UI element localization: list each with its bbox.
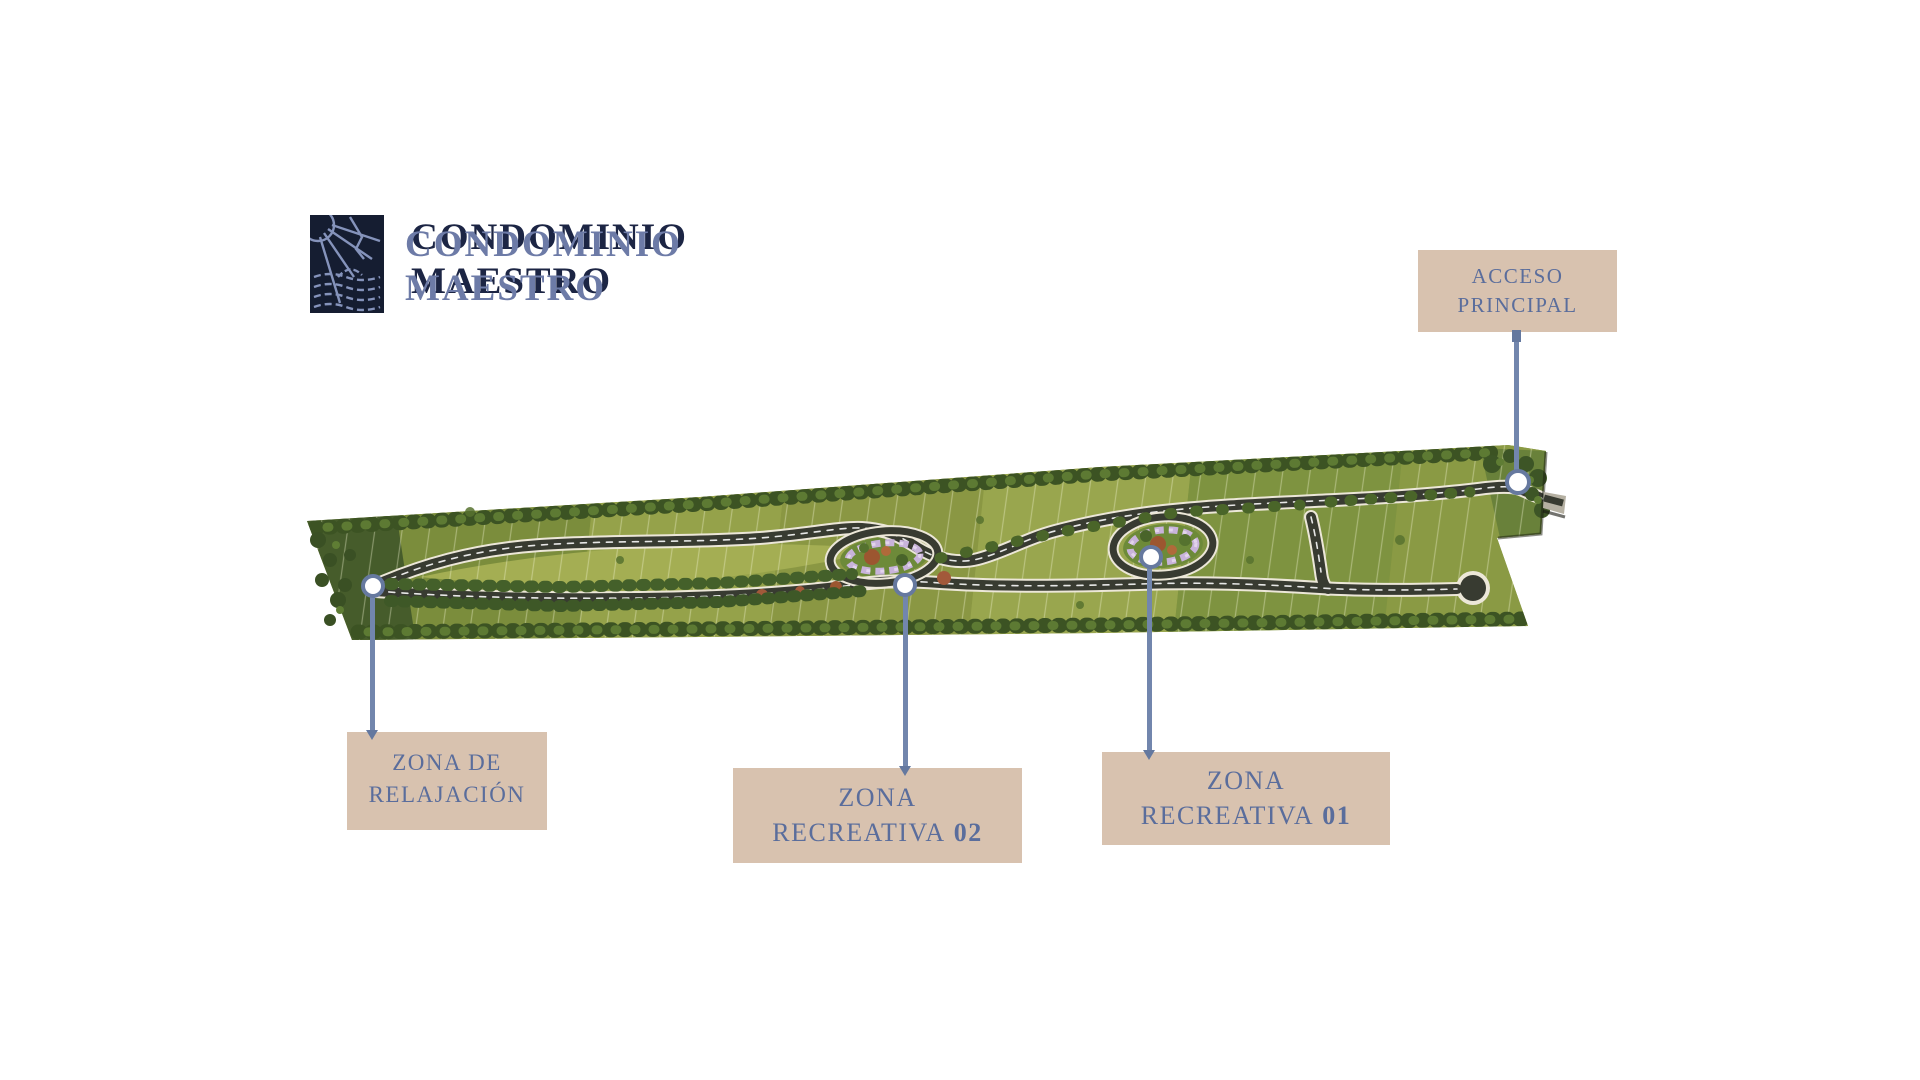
connector-tip-relajacion [366, 730, 378, 740]
connector-zona-recreativa-01 [1147, 568, 1152, 752]
connector-zona-recreativa-02 [903, 596, 908, 770]
callout-zona-recreativa-02: ZONA RECREATIVA 02 [733, 768, 1022, 863]
connector-zona-relajacion [370, 597, 375, 734]
marker-acceso-principal [1505, 469, 1531, 495]
page: { "brand": { "logo_icon": "sailboat-sun-… [0, 0, 1920, 1080]
connector-tip-recreativa-02 [899, 766, 911, 776]
callout-zona-relajacion: ZONA DE RELAJACIÓN [347, 732, 547, 830]
callout-zona-recreativa-01: ZONA RECREATIVA 01 [1102, 752, 1390, 845]
connector-cap-acceso [1512, 330, 1521, 342]
callout-recreativa01-line2: RECREATIVA 01 [1102, 798, 1390, 833]
logo-sailboat-sun-waves-icon [310, 215, 384, 313]
marker-zona-recreativa-01 [1139, 545, 1163, 569]
brand-name-line2: MAESTRO [405, 270, 606, 307]
callout-relajacion-line1: ZONA DE [347, 747, 547, 779]
recreativa02-number: 02 [954, 818, 983, 847]
brand-name-line1: CONDOMINIO [405, 226, 682, 263]
site-plan-map [0, 0, 1920, 1080]
callout-acceso-line1: ACCESO [1418, 262, 1617, 291]
marker-zona-recreativa-02 [893, 573, 917, 597]
callout-relajacion-line2: RELAJACIÓN [347, 779, 547, 811]
callout-acceso-line2: PRINCIPAL [1418, 291, 1617, 320]
connector-acceso-principal [1514, 333, 1519, 473]
callout-recreativa02-line2: RECREATIVA 02 [733, 815, 1022, 850]
callout-recreativa01-line1: ZONA [1102, 763, 1390, 798]
callout-acceso-principal: ACCESO PRINCIPAL [1418, 250, 1617, 332]
recreativa01-number: 01 [1322, 801, 1351, 830]
callout-recreativa02-line1: ZONA [733, 780, 1022, 815]
marker-zona-relajacion [361, 574, 385, 598]
connector-tip-recreativa-01 [1143, 750, 1155, 760]
